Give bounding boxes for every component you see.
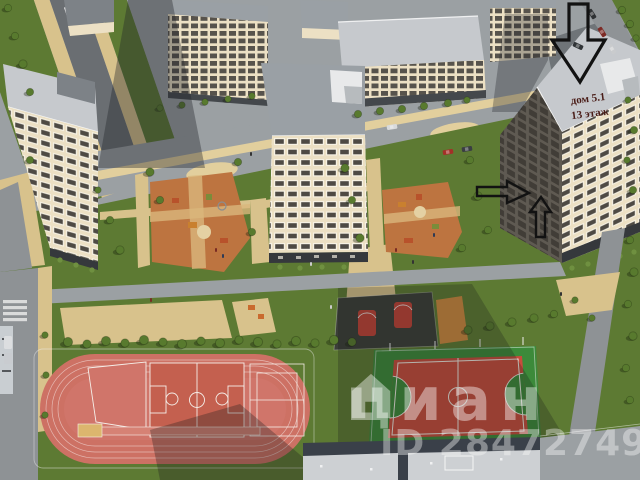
site-plan-scene bbox=[0, 0, 640, 480]
bg-building-roof bbox=[64, 0, 114, 26]
parked-van bbox=[4, 336, 12, 349]
parked-van bbox=[4, 353, 12, 364]
residential-complex-aerial-render: дом 5.1 13 этаж циан ID 284727496 bbox=[0, 0, 640, 480]
tower-center bbox=[261, 63, 368, 271]
playground-left bbox=[150, 172, 250, 272]
long-jump-pit bbox=[78, 424, 102, 437]
playground-right bbox=[382, 182, 462, 258]
multiuse-court bbox=[88, 362, 146, 430]
